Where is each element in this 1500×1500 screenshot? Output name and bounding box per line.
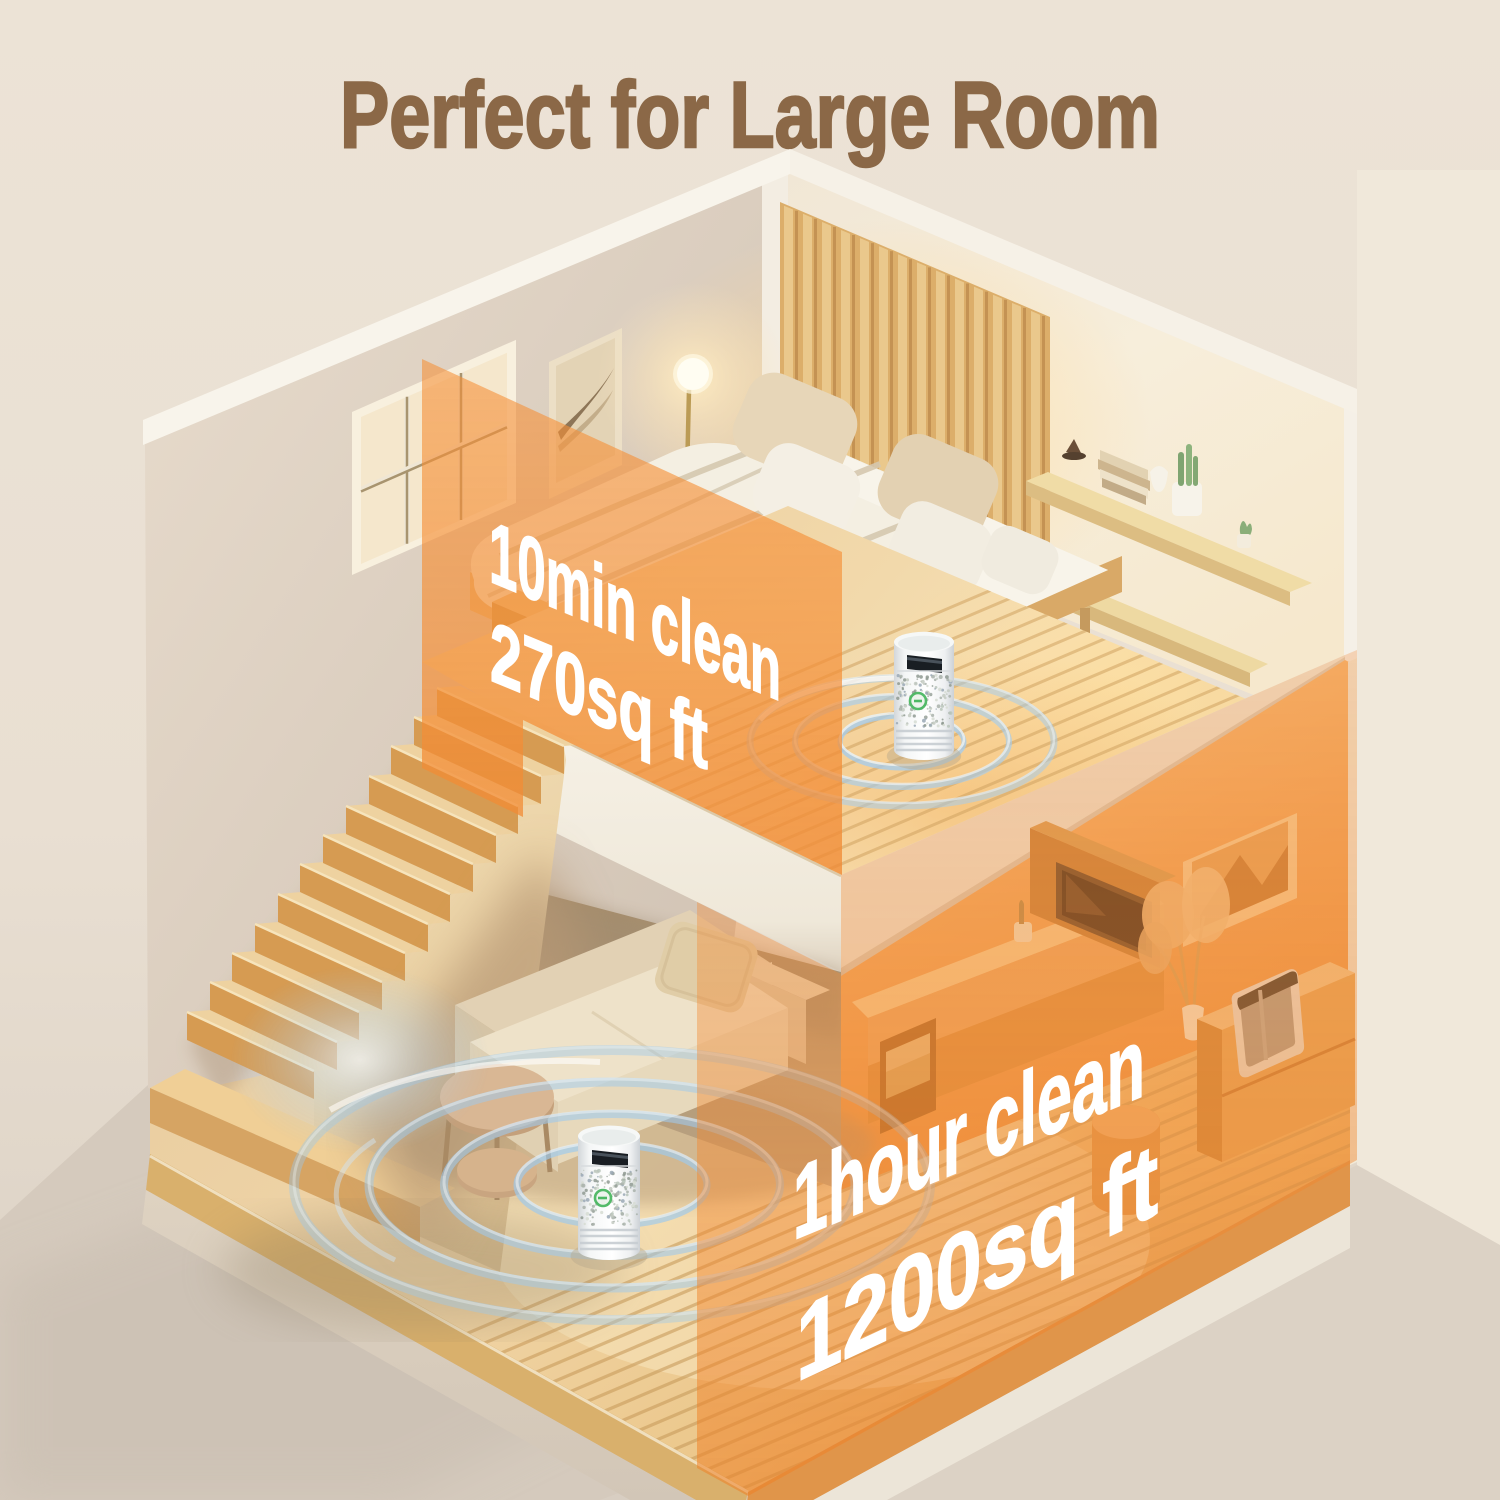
- svg-text:Perfect for Large Room: Perfect for Large Room: [340, 62, 1160, 167]
